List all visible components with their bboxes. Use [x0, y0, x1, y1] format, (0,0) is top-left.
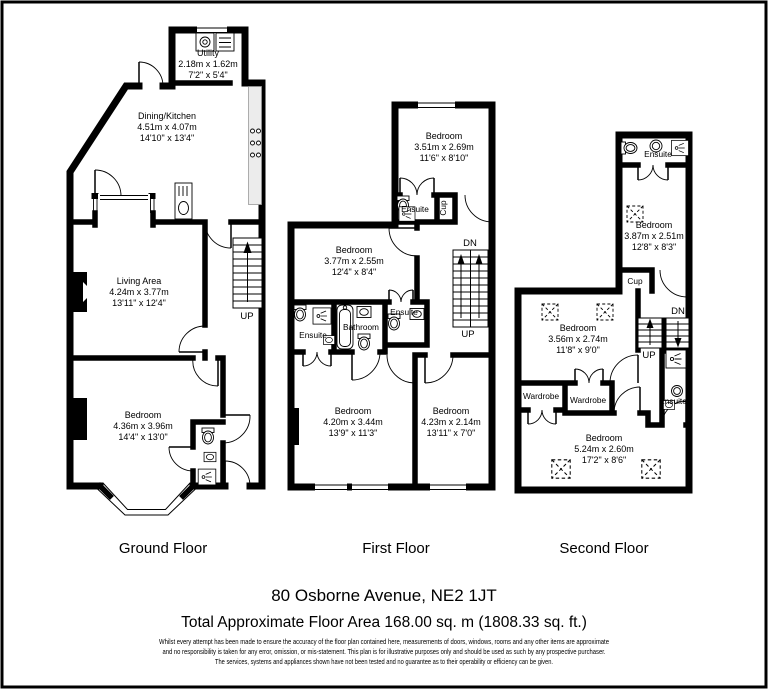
footer: Ground Floor First Floor Second Floor 80… [119, 540, 649, 666]
skylight-icon [642, 460, 660, 478]
room-name: Utility [197, 48, 219, 58]
cupboard-label: Cup [627, 276, 643, 286]
room-name: Bedroom [426, 131, 463, 141]
door [139, 62, 163, 86]
door [205, 222, 231, 248]
sink-icon [204, 452, 216, 461]
room-name: Bedroom [636, 220, 673, 230]
stairs [453, 250, 488, 327]
disclaimer-line-3: The services, systems and appliances sho… [215, 657, 553, 666]
double-door [575, 369, 603, 383]
room-imperial: 7'2" x 5'4" [188, 70, 227, 80]
room-name: Bedroom [586, 433, 623, 443]
kitchen-counter [249, 87, 262, 205]
room-metric: 3.51m x 2.69m [414, 142, 474, 152]
room-imperial: 14'4" x 13'0" [118, 432, 167, 442]
room-imperial: 11'6" x 8'10" [420, 153, 469, 163]
door [95, 170, 121, 196]
chimney-breast [70, 398, 87, 440]
second-floor-title: Second Floor [559, 540, 648, 557]
shower-icon [672, 140, 689, 155]
door [465, 195, 492, 222]
stairs-up-label: UP [240, 311, 253, 322]
room-label-dining-kitchen: Dining/Kitchen 4.51m x 4.07m 14'10" x 13… [137, 111, 197, 143]
door [610, 355, 638, 383]
room-name: Bedroom [433, 406, 470, 416]
stairs-down-label: DN [671, 306, 685, 317]
room-label-living-area: Living Area 4.24m x 3.77m 13'11" x 12'4" [109, 276, 169, 308]
door [352, 352, 380, 380]
room-imperial: 13'11" x 12'4" [112, 298, 166, 308]
window [352, 484, 388, 491]
stairs-down-label: DN [463, 238, 477, 249]
room-label-utility: Utility 2.18m x 1.62m 7'2" x 5'4" [178, 48, 238, 80]
skylight-icon [552, 460, 570, 478]
room-name: Bedroom [336, 245, 373, 255]
rear-bay-window [92, 193, 156, 213]
room-metric: 3.56m x 2.74m [548, 334, 608, 344]
room-metric: 3.87m x 2.51m [624, 231, 684, 241]
room-name: Living Area [117, 276, 162, 286]
first-floor-plan: Bedroom 3.51m x 2.69m 11'6" x 8'10" Bedr… [288, 102, 492, 491]
shower-icon [666, 350, 686, 368]
door [193, 358, 218, 386]
ground-floor-title: Ground Floor [119, 540, 207, 557]
room-label-bedroom: Bedroom 5.24m x 2.60m 17'2" x 8'6" [574, 433, 634, 465]
door [389, 228, 417, 256]
double-door [638, 165, 668, 180]
door [614, 387, 640, 413]
second-floor-plan: Bedroom 3.87m x 2.51m 12'8" x 8'3" Bedro… [518, 135, 689, 490]
double-door [389, 290, 413, 302]
room-imperial: 13'11" x 7'0" [427, 428, 476, 438]
room-imperial: 12'8" x 8'3" [632, 242, 676, 252]
skylight-icon [597, 304, 613, 320]
room-metric: 5.24m x 2.60m [574, 444, 634, 454]
double-door [303, 352, 331, 366]
door [169, 447, 193, 471]
toilet-icon [358, 334, 370, 350]
toilet-icon [202, 428, 214, 444]
ground-floor-plan: Utility 2.18m x 1.62m 7'2" x 5'4" Dining… [70, 27, 262, 516]
door [223, 415, 250, 443]
ensuite-label: Ensuite [299, 330, 327, 340]
door [425, 355, 453, 383]
toilet-icon [294, 305, 306, 321]
room-imperial: 14'10" x 13'4" [140, 133, 194, 143]
ensuite-label: Ensuite [659, 396, 687, 406]
ensuite-label: Ensuite [401, 204, 429, 214]
first-floor-title: First Floor [362, 540, 430, 557]
ensuite-label: Ensuite [644, 149, 672, 159]
wardrobe-label: Wardrobe [523, 391, 560, 401]
room-label-bedroom: Bedroom 3.87m x 2.51m 12'8" x 8'3" [624, 220, 684, 252]
ensuite-label: Ensuite [390, 307, 418, 317]
door [387, 355, 415, 383]
disclaimer-line-1: Whilst every attempt has been made to en… [159, 637, 609, 646]
room-label-bedroom: Bedroom 4.20m x 3.44m 13'9" x 11'3" [323, 406, 383, 438]
door [179, 326, 205, 352]
sink-icon [672, 386, 683, 397]
sink-unit-icon [175, 183, 192, 219]
room-metric: 4.36m x 3.96m [113, 421, 173, 431]
room-label-bedroom: Bedroom 4.23m x 2.14m 13'11" x 7'0" [421, 406, 481, 438]
room-label-bedroom: Bedroom 3.51m x 2.69m 11'6" x 8'10" [414, 131, 474, 163]
floorplan-image: Utility 2.18m x 1.62m 7'2" x 5'4" Dining… [0, 0, 768, 689]
shower-icon [198, 469, 216, 485]
front-door [225, 461, 250, 486]
room-imperial: 11'8" x 9'0" [556, 345, 600, 355]
window [430, 484, 466, 491]
second-interior-walls [518, 165, 689, 425]
front-bay-window [97, 483, 196, 515]
room-name: Bedroom [125, 410, 162, 420]
window [418, 102, 455, 109]
room-metric: 2.18m x 1.62m [178, 59, 238, 69]
wardrobe-label: Wardrobe [570, 395, 607, 405]
cupboard-label: Cup [438, 200, 448, 216]
room-metric: 4.20m x 3.44m [323, 417, 383, 427]
double-door [400, 178, 434, 195]
room-metric: 4.23m x 2.14m [421, 417, 481, 427]
room-label-bedroom: Bedroom 4.36m x 3.96m 14'4" x 13'0" [113, 410, 173, 442]
window [197, 27, 227, 34]
floorplan-page: Utility 2.18m x 1.62m 7'2" x 5'4" Dining… [0, 0, 768, 689]
shower-icon [313, 308, 331, 324]
room-imperial: 13'9" x 11'3" [329, 428, 378, 438]
room-imperial: 17'2" x 8'6" [582, 455, 626, 465]
skylight-icon [542, 304, 558, 320]
toilet-icon [621, 142, 637, 154]
total-floor-area: Total Approximate Floor Area 168.00 sq. … [181, 614, 587, 631]
sink-icon [357, 307, 371, 318]
property-address: 80 Osborne Avenue, NE2 1JT [271, 586, 497, 605]
stairs-up-label: UP [461, 329, 474, 340]
room-name: Bedroom [560, 323, 597, 333]
door [660, 270, 687, 297]
window [315, 484, 347, 491]
room-label-bedroom: Bedroom 3.56m x 2.74m 11'8" x 9'0" [548, 323, 608, 355]
stairs [638, 318, 689, 348]
room-name: Dining/Kitchen [138, 111, 196, 121]
room-name: Bedroom [335, 406, 372, 416]
disclaimer-line-2: and no responsibility is taken for any e… [163, 647, 606, 656]
room-metric: 3.77m x 2.55m [324, 256, 384, 266]
double-door [528, 410, 556, 424]
bathroom-label: Bathroom [343, 322, 379, 332]
room-label-bedroom: Bedroom 3.77m x 2.55m 12'4" x 8'4" [324, 245, 384, 277]
room-metric: 4.24m x 3.77m [109, 287, 169, 297]
chimney-breast [288, 408, 299, 445]
stairs-up-label: UP [642, 350, 655, 361]
stairs-up [233, 238, 262, 308]
room-metric: 4.51m x 4.07m [137, 122, 197, 132]
room-imperial: 12'4" x 8'4" [332, 267, 376, 277]
